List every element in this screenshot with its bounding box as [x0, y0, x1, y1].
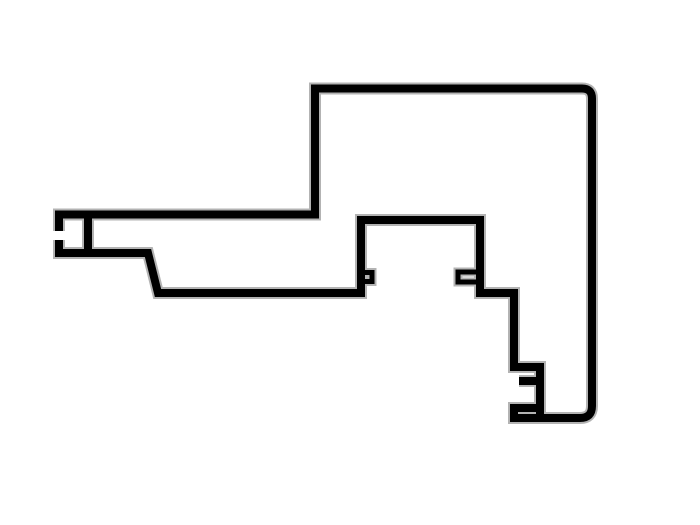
ink-inner-wall: [59, 220, 540, 418]
drawing-canvas: [0, 0, 700, 525]
profile-cross-section-drawing: [0, 0, 700, 525]
ink-outline-layer: [59, 89, 592, 419]
